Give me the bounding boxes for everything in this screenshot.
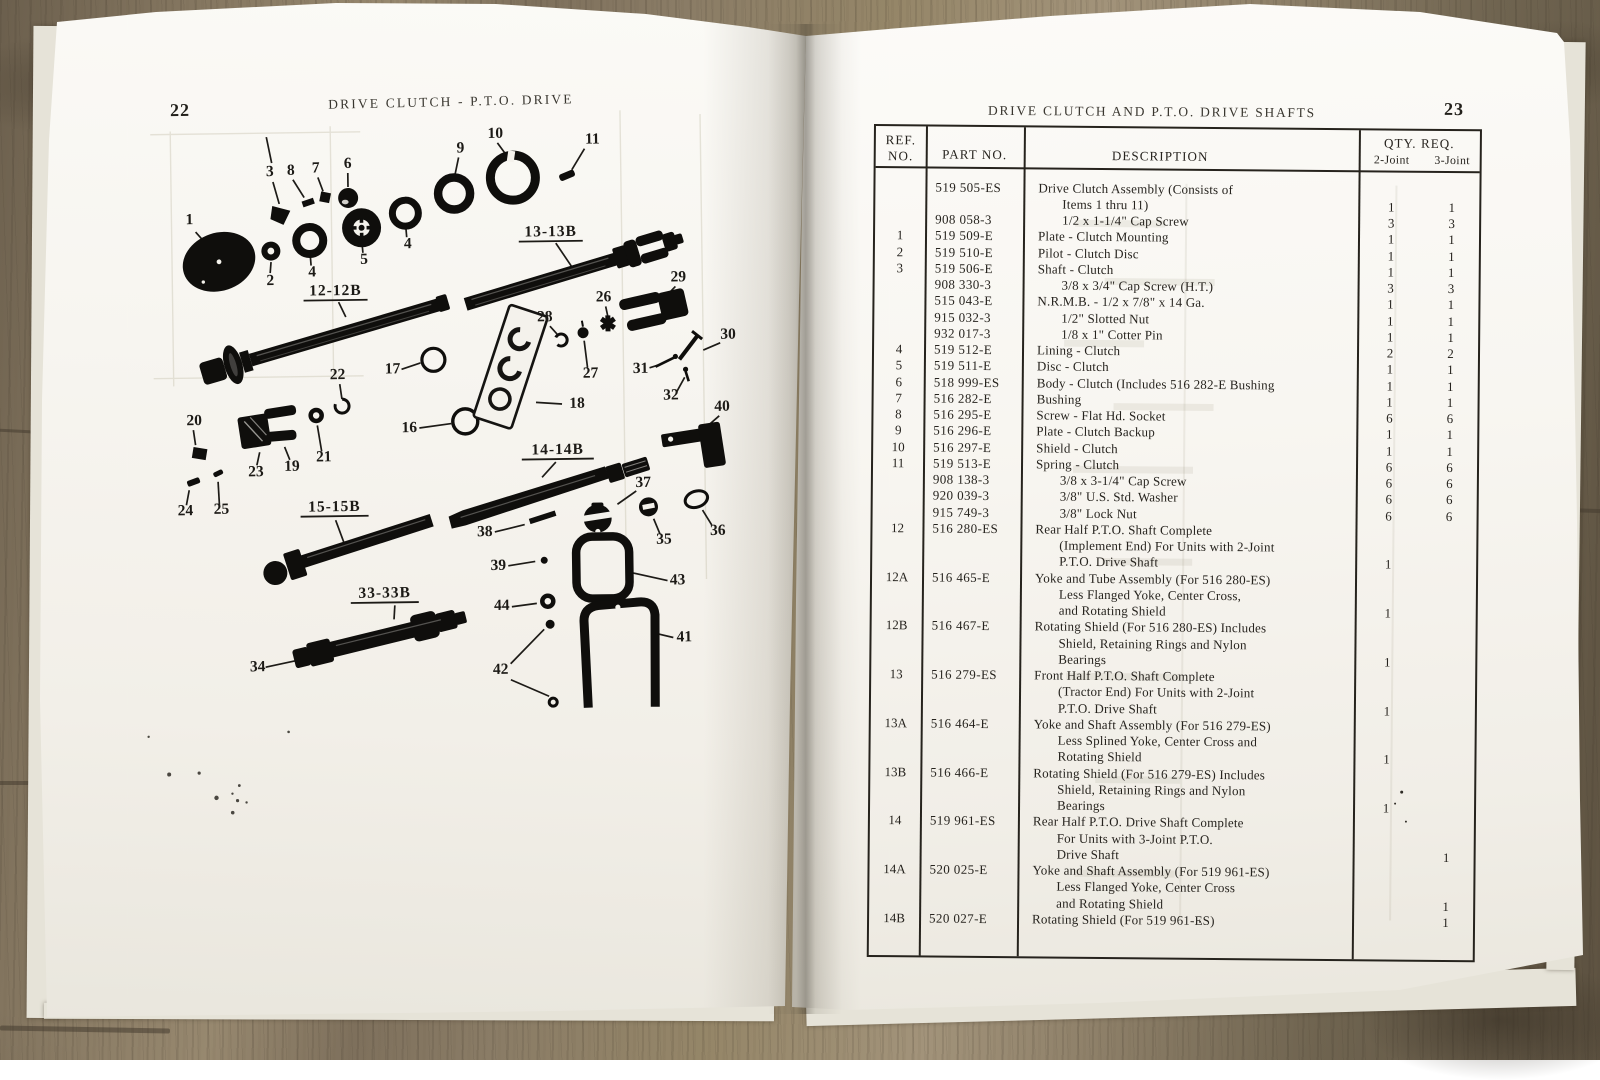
group-label-13-13B: 13-13B xyxy=(524,223,577,241)
callout-35: 35 xyxy=(656,530,672,547)
part-41-shield-half xyxy=(584,602,657,708)
cell-qty-2joint xyxy=(1354,694,1420,695)
callout-9: 9 xyxy=(456,139,464,156)
cell-qty-2joint: 1 xyxy=(1357,314,1423,328)
callout-36: 36 xyxy=(710,522,726,539)
cell-part-no: 908 138-3 xyxy=(923,473,1021,487)
cell-qty-2joint: 1 xyxy=(1356,444,1422,458)
cell-part-no: 516 295-E xyxy=(923,408,1021,422)
cell-description: and Rotating Shield xyxy=(1020,603,1355,619)
cell-part-no: 516 296-E xyxy=(923,424,1021,438)
ink-speck xyxy=(1400,791,1403,794)
callout-38: 38 xyxy=(477,523,493,540)
cell-qty-3joint: 1 xyxy=(1422,444,1477,457)
cell-part-no: 516 467-E xyxy=(922,619,1020,633)
part-43-shield-half xyxy=(576,536,630,599)
cell-part-no xyxy=(921,642,1019,643)
cell-part-no: 520 027-E xyxy=(919,911,1017,925)
callout-34: 34 xyxy=(250,658,266,675)
cell-description: Rotating Shield (For 519 961-ES) xyxy=(1017,912,1352,928)
cell-qty-2joint xyxy=(1355,597,1421,598)
callout-42: 42 xyxy=(493,661,509,678)
part-25-pin xyxy=(213,469,224,478)
callout-7: 7 xyxy=(312,159,320,176)
cell-description: Rotating Shield (For 516 280-ES) Include… xyxy=(1020,620,1355,636)
cell-part-no xyxy=(925,203,1023,204)
cell-description: Bushing xyxy=(1022,392,1357,408)
cell-part-no xyxy=(920,853,1018,854)
ink-speck xyxy=(1405,821,1407,823)
part-26-star-clip xyxy=(600,315,616,331)
cell-qty-2joint: 1 xyxy=(1355,558,1421,572)
diagram-parts xyxy=(173,147,729,713)
cell-qty-2joint: 6 xyxy=(1356,509,1422,523)
callout-17: 17 xyxy=(385,360,401,377)
cell-qty-2joint xyxy=(1353,824,1419,825)
cell-part-no: 932 017-3 xyxy=(924,326,1022,340)
cell-part-no: 519 513-E xyxy=(923,456,1021,470)
cell-qty-2joint: 1 xyxy=(1353,801,1419,815)
cell-qty-2joint: 6 xyxy=(1356,460,1422,474)
cell-ref-no: 14B xyxy=(869,911,919,924)
cell-qty-2joint: 6 xyxy=(1356,493,1422,507)
cell-qty-3joint: 6 xyxy=(1422,477,1477,490)
header-3-joint: 3-Joint xyxy=(1425,153,1480,168)
cell-qty-2joint: 1 xyxy=(1356,428,1422,442)
exploded-parts-diagram: 1 2 4 5 4 6 7 8 3 9 10 11 13-13B 12-12B … xyxy=(60,108,770,838)
cell-qty-2joint: 1 xyxy=(1357,379,1423,393)
table-header: REF. NO. PART NO. DESCRIPTION QTY. REQ. … xyxy=(876,126,1480,171)
callout-3: 3 xyxy=(266,163,274,180)
cell-description: 3/8" U.S. Std. Washer xyxy=(1021,490,1356,506)
cell-part-no: 516 466-E xyxy=(920,765,1018,779)
part-33-shaft xyxy=(291,603,469,671)
cell-ref-no: 13B xyxy=(870,765,920,778)
cell-description: Body - Clutch (Includes 516 282-E Bushin… xyxy=(1022,376,1357,392)
cell-qty-2joint xyxy=(1353,792,1419,793)
cell-description: Less Flanged Yoke, Center Cross, xyxy=(1020,587,1355,603)
cell-qty-3joint: 1 xyxy=(1424,249,1479,262)
cell-qty-3joint: 1 xyxy=(1422,428,1477,441)
callout-20: 20 xyxy=(186,412,202,429)
part-7-key xyxy=(319,191,331,203)
cell-qty-2joint: 1 xyxy=(1358,265,1424,279)
cell-ref-no: 8 xyxy=(873,407,923,420)
part-3-shaft-end xyxy=(270,206,290,225)
callout-4b: 4 xyxy=(404,235,412,252)
part-1-clutch-plate xyxy=(174,222,263,301)
cell-qty-2joint xyxy=(1355,532,1421,533)
callout-23: 23 xyxy=(248,463,264,480)
callout-21: 21 xyxy=(316,448,332,465)
cell-ref-no: 12 xyxy=(872,521,922,534)
callout-29: 29 xyxy=(670,268,686,285)
cell-ref-no: 13A xyxy=(871,716,921,729)
cell-description: Lining - Clutch xyxy=(1022,343,1357,359)
cell-part-no xyxy=(922,609,1020,610)
callout-6: 6 xyxy=(344,155,352,172)
callout-32: 32 xyxy=(663,386,679,403)
callout-1: 1 xyxy=(185,211,193,228)
cell-qty-3joint: 3 xyxy=(1424,282,1479,295)
part-5-clutch-disc xyxy=(342,208,382,248)
cell-part-no: 915 032-3 xyxy=(924,310,1022,324)
callout-16: 16 xyxy=(401,419,417,436)
ink-specks xyxy=(147,731,291,816)
cell-qty-3joint: 1 xyxy=(1418,899,1473,912)
cell-part-no xyxy=(922,593,1020,594)
cell-description: Yoke and Shaft Assembly (For 519 961-ES) xyxy=(1017,863,1352,879)
part-28-snap-ring xyxy=(553,332,569,348)
cell-ref-no: 14 xyxy=(870,813,920,826)
callout-25: 25 xyxy=(214,501,230,518)
cell-qty-3joint: 1 xyxy=(1423,396,1478,409)
cell-qty-3joint: 6 xyxy=(1422,493,1477,506)
callout-26: 26 xyxy=(596,288,612,305)
cell-qty-3joint: 1 xyxy=(1423,363,1478,376)
cell-part-no: 520 025-E xyxy=(919,863,1017,877)
cell-description: 1/2 x 1-1/4" Cap Screw xyxy=(1023,213,1358,229)
cell-description: Shield, Retaining Rings and Nylon xyxy=(1018,782,1353,798)
group-label-12-12B: 12-12B xyxy=(309,282,362,300)
cell-qty-3joint: 1 xyxy=(1424,201,1479,214)
ink-speck xyxy=(1199,921,1201,923)
cell-qty-2joint xyxy=(1355,580,1421,581)
cell-qty-2joint: 1 xyxy=(1357,363,1423,377)
cell-part-no: 920 039-3 xyxy=(923,489,1021,503)
cell-ref-no: 5 xyxy=(874,358,924,371)
cell-qty-3joint: 6 xyxy=(1422,509,1477,522)
cell-qty-2joint: 1 xyxy=(1357,298,1423,312)
part-4-lining-ring-2 xyxy=(392,200,418,226)
callout-11: 11 xyxy=(585,130,600,147)
cell-part-no: 519 505-ES xyxy=(925,180,1023,194)
cell-part-no xyxy=(920,788,1018,789)
cell-description: Rotating Shield xyxy=(1018,750,1353,766)
cell-qty-2joint: 1 xyxy=(1358,233,1424,247)
cell-ref-no: 12B xyxy=(872,618,922,631)
group-label-33-33B: 33-33B xyxy=(358,584,411,602)
callout-22: 22 xyxy=(330,366,346,383)
cell-description: P.T.O. Drive Shaft xyxy=(1019,701,1354,717)
cell-description: Drive Clutch Assembly (Consists of xyxy=(1023,181,1358,197)
cell-description: Shield, Retaining Rings and Nylon xyxy=(1019,636,1354,652)
cell-description: 3/8" Lock Nut xyxy=(1021,506,1356,522)
cell-description: P.T.O. Drive Shaft xyxy=(1020,555,1355,571)
cell-description: (Tractor End) For Units with 2-Joint xyxy=(1019,685,1354,701)
cell-part-no: 516 279-ES xyxy=(921,668,1019,682)
callout-40: 40 xyxy=(714,398,730,415)
cell-description: Plate - Clutch Backup xyxy=(1021,425,1356,441)
cell-description: Plate - Clutch Mounting xyxy=(1023,230,1358,246)
callout-10: 10 xyxy=(487,125,503,142)
part-11-spring xyxy=(558,169,575,182)
cell-description: Pilot - Clutch Disc xyxy=(1023,246,1358,262)
part-15-shaft xyxy=(259,507,436,588)
header-ref-line2: NO. xyxy=(876,148,926,164)
part-40-bracket xyxy=(660,421,726,474)
cell-ref-no: 6 xyxy=(874,375,924,388)
cell-part-no: 908 330-3 xyxy=(925,278,1023,292)
cell-description: Spring - Clutch xyxy=(1021,457,1356,473)
cell-part-no: 519 512-E xyxy=(924,343,1022,357)
part-2-pilot-washer xyxy=(261,241,280,260)
cell-qty-2joint xyxy=(1353,775,1419,776)
cell-qty-3joint: 1 xyxy=(1424,233,1479,246)
cell-part-no: 516 465-E xyxy=(922,570,1020,584)
callout-24: 24 xyxy=(178,502,194,519)
cell-description: For Units with 3-Joint P.T.O. xyxy=(1018,831,1353,847)
cell-description: Yoke and Tube Assembly (For 516 280-ES) xyxy=(1020,571,1355,587)
callout-5: 5 xyxy=(360,251,368,268)
cell-part-no: 516 280-ES xyxy=(922,521,1020,535)
cell-qty-2joint xyxy=(1355,548,1421,549)
cell-description: Bearings xyxy=(1019,652,1354,668)
cell-qty-2joint xyxy=(1352,873,1418,874)
cell-qty-2joint xyxy=(1354,645,1420,646)
cell-description: Rear Half P.T.O. Shaft Complete xyxy=(1020,522,1355,538)
cell-description: Front Half P.T.O. Shaft Complete xyxy=(1019,668,1354,684)
cell-qty-3joint: 1 xyxy=(1423,314,1478,327)
callout-2: 2 xyxy=(266,272,274,289)
callout-30: 30 xyxy=(720,326,736,343)
cell-description: Screw - Flat Hd. Socket xyxy=(1021,408,1356,424)
cell-ref-no: 2 xyxy=(875,245,925,258)
cell-description: Shield - Clutch xyxy=(1021,441,1356,457)
cell-qty-2joint: 1 xyxy=(1355,606,1421,620)
header-part-no: PART NO. xyxy=(926,146,1024,163)
cell-ref-no: 11 xyxy=(873,456,923,469)
cell-qty-3joint: 6 xyxy=(1422,412,1477,425)
callout-19: 19 xyxy=(284,458,300,475)
part-22-snap-ring xyxy=(332,396,352,416)
cell-part-no xyxy=(920,804,1018,805)
cell-part-no: 516 282-E xyxy=(924,391,1022,405)
cell-part-no: 518 999-ES xyxy=(924,375,1022,389)
cell-part-no: 516 297-E xyxy=(923,440,1021,454)
table-body: 519 505-ES Drive Clutch Assembly (Consis… xyxy=(869,178,1480,931)
cell-part-no xyxy=(920,755,1018,756)
cell-part-no: 915 749-3 xyxy=(923,505,1021,519)
header-ref-line1: REF. xyxy=(876,132,926,148)
cell-qty-2joint: 3 xyxy=(1358,216,1424,230)
cell-description: 1/8 x 1" Cotter Pin xyxy=(1022,327,1357,343)
cell-part-no xyxy=(920,837,1018,838)
cell-ref-no: 4 xyxy=(874,342,924,355)
cell-description: Bearings xyxy=(1018,798,1353,814)
cell-qty-2joint: 1 xyxy=(1357,330,1423,344)
part-37-clamp xyxy=(581,502,613,534)
cell-qty-3joint: 6 xyxy=(1422,461,1477,474)
part-39-ball xyxy=(541,557,548,564)
callout-18: 18 xyxy=(569,395,585,412)
cell-qty-2joint xyxy=(1358,190,1424,191)
cell-ref-no: 3 xyxy=(875,261,925,274)
header-qty-req: QTY. REQ. xyxy=(1359,135,1480,152)
cell-part-no: 519 509-E xyxy=(925,229,1023,243)
cell-description: 1/2" Slotted Nut xyxy=(1022,311,1357,327)
cell-ref-no: 7 xyxy=(874,391,924,404)
cell-qty-2joint: 1 xyxy=(1358,249,1424,263)
part-31-screw xyxy=(655,354,678,367)
part-20-key xyxy=(192,447,208,460)
cell-description: Yoke and Shaft Assembly (For 516 279-ES) xyxy=(1019,717,1354,733)
cell-qty-2joint xyxy=(1352,922,1418,923)
cell-qty-3joint: 2 xyxy=(1423,347,1478,360)
cell-description: (Implement End) For Units with 2-Joint xyxy=(1020,538,1355,554)
part-35-bushing xyxy=(639,497,658,516)
cell-qty-2joint: 6 xyxy=(1356,476,1422,490)
photo-of-open-parts-manual: 22 DRIVE CLUTCH - P.T.O. DRIVE xyxy=(0,0,1600,1060)
cell-qty-2joint: 1 xyxy=(1357,395,1423,409)
callout-43: 43 xyxy=(670,571,686,588)
cell-qty-2joint: 1 xyxy=(1353,753,1419,767)
part-24-pin xyxy=(186,477,200,487)
cell-qty-2joint xyxy=(1352,889,1418,890)
callout-8: 8 xyxy=(287,162,295,179)
right-page-title: DRIVE CLUTCH AND P.T.O. DRIVE SHAFTS xyxy=(988,103,1318,121)
cell-part-no xyxy=(921,658,1019,659)
cell-qty-2joint: 2 xyxy=(1357,346,1423,360)
part-23-19-splined-yoke xyxy=(237,405,297,450)
part-21-washer xyxy=(311,410,322,421)
cell-part-no: 908 058-3 xyxy=(925,213,1023,227)
cell-part-no xyxy=(921,707,1019,708)
cell-qty-3joint: 1 xyxy=(1423,331,1478,344)
cell-qty-3joint: 1 xyxy=(1424,266,1479,279)
callout-41: 41 xyxy=(676,628,692,645)
cell-description: Less Flanged Yoke, Center Cross xyxy=(1017,880,1352,896)
cell-qty-2joint xyxy=(1354,727,1420,728)
callout-28: 28 xyxy=(537,308,553,325)
ink-speck xyxy=(1394,803,1396,805)
callout-27: 27 xyxy=(583,365,599,382)
cell-part-no: 516 464-E xyxy=(921,716,1019,730)
cell-ref-no: 1 xyxy=(875,228,925,241)
cell-qty-2joint xyxy=(1353,840,1419,841)
cell-ref-no: 14A xyxy=(869,862,919,875)
cell-qty-3joint: 1 xyxy=(1423,298,1478,311)
cell-part-no xyxy=(919,902,1017,903)
callout-39: 39 xyxy=(490,557,506,574)
cell-part-no xyxy=(921,739,1019,740)
part-30-pin xyxy=(679,331,702,359)
cell-ref-no: 13 xyxy=(871,667,921,680)
cell-description: Rear Half P.T.O. Drive Shaft Complete xyxy=(1018,815,1353,831)
part-4-lining-ring xyxy=(296,227,323,254)
cell-qty-2joint: 1 xyxy=(1354,704,1420,718)
cell-description: Rotating Shield (For 516 279-ES) Include… xyxy=(1018,766,1353,782)
cell-part-no: 515 043-E xyxy=(924,294,1022,308)
cell-qty-2joint xyxy=(1354,678,1420,679)
part-9-backup-plate xyxy=(438,177,470,209)
cell-part-no xyxy=(919,885,1017,886)
cell-description: Drive Shaft xyxy=(1018,847,1353,863)
cell-part-no: 519 510-E xyxy=(925,245,1023,259)
cell-part-no: 519 961-ES xyxy=(920,814,1018,828)
parts-table: REF. NO. PART NO. DESCRIPTION QTY. REQ. … xyxy=(867,124,1482,962)
part-29-yoke xyxy=(618,286,690,333)
callout-37: 37 xyxy=(635,474,651,491)
part-42-nut-2 xyxy=(549,698,557,706)
cell-description: Less Splined Yoke, Center Cross and xyxy=(1019,733,1354,749)
part-10-shield-band xyxy=(490,150,536,201)
cell-description: 3/8 x 3-1/4" Cap Screw xyxy=(1021,473,1356,489)
cell-qty-2joint xyxy=(1354,743,1420,744)
right-page-number: 23 xyxy=(1444,99,1464,120)
cell-qty-3joint: 1 xyxy=(1418,916,1473,929)
part-38-pin xyxy=(530,513,556,521)
cell-ref-no: 12A xyxy=(872,570,922,583)
group-label-15-15B: 15-15B xyxy=(308,498,361,516)
header-description: DESCRIPTION xyxy=(1024,147,1359,166)
part-17-ring xyxy=(422,348,445,371)
part-27-bolt xyxy=(577,321,588,339)
cell-part-no: 519 506-E xyxy=(925,261,1023,275)
cell-qty-2joint xyxy=(1353,857,1419,858)
cell-part-no: 519 511-E xyxy=(924,359,1022,373)
cell-description: N.R.M.B. - 1/2 x 7/8" x 14 Ga. xyxy=(1022,295,1357,311)
cell-description: Items 1 thru 11) xyxy=(1023,197,1358,213)
cell-qty-2joint: 1 xyxy=(1354,655,1420,669)
cell-description: Disc - Clutch xyxy=(1022,360,1357,376)
cell-description: Shaft - Clutch xyxy=(1023,262,1358,278)
cell-qty-2joint: 3 xyxy=(1358,281,1424,295)
part-6-ball xyxy=(338,188,358,208)
cell-qty-3joint: 3 xyxy=(1424,217,1479,230)
cell-qty-2joint xyxy=(1352,905,1418,906)
part-44-ring xyxy=(542,596,553,607)
cell-qty-2joint: 6 xyxy=(1356,411,1422,425)
cell-qty-3joint: 1 xyxy=(1423,379,1478,392)
cell-ref-no: 9 xyxy=(873,423,923,436)
cell-description: 3/8 x 3/4" Cap Screw (H.T.) xyxy=(1023,278,1358,294)
header-2-joint: 2-Joint xyxy=(1359,152,1425,168)
callout-4a: 4 xyxy=(308,263,316,280)
cell-qty-3joint: 1 xyxy=(1419,851,1474,864)
cell-qty-2joint xyxy=(1355,629,1421,630)
group-label-14-14B: 14-14B xyxy=(531,441,584,459)
cell-part-no xyxy=(922,544,1020,545)
cell-part-no xyxy=(922,560,1020,561)
cell-ref-no: 10 xyxy=(873,440,923,453)
part-8-pin xyxy=(302,198,315,208)
part-42-nut xyxy=(546,620,555,629)
callout-44: 44 xyxy=(494,597,510,614)
cell-part-no xyxy=(921,690,1019,691)
callout-31: 31 xyxy=(633,360,649,377)
cell-qty-2joint: 1 xyxy=(1358,200,1424,214)
cell-description: and Rotating Shield xyxy=(1017,896,1352,912)
